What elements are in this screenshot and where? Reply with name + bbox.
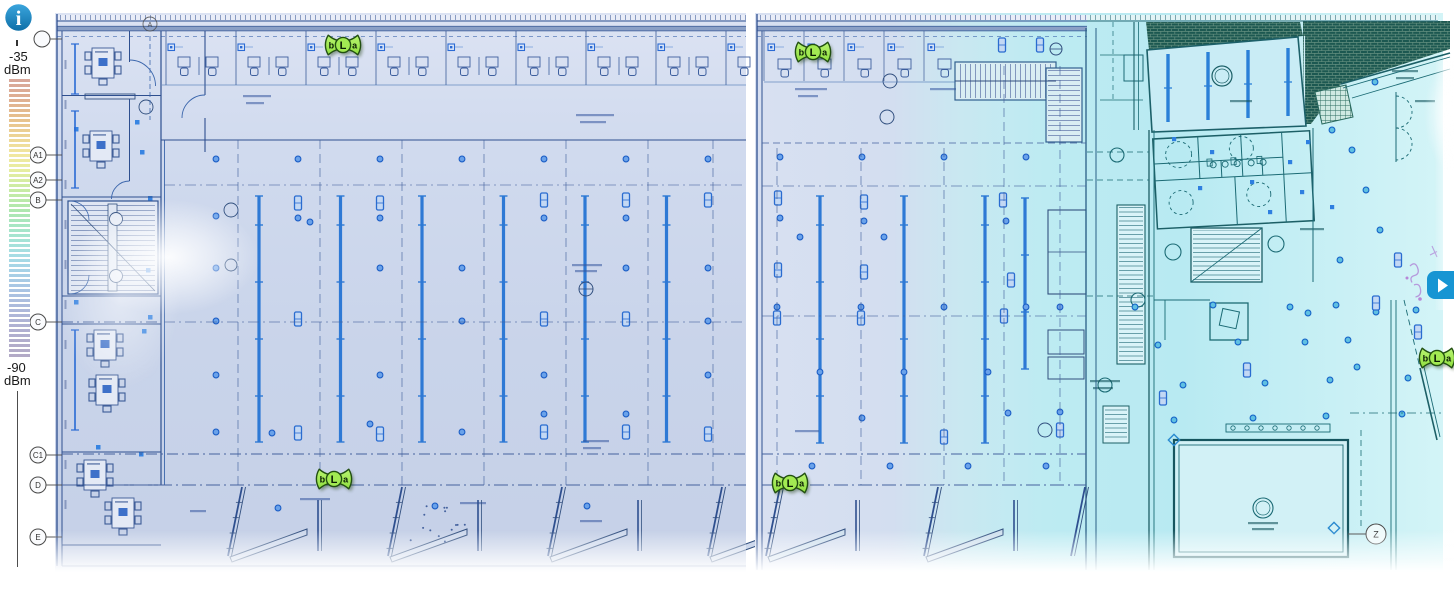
svg-text:E: E	[35, 533, 40, 542]
svg-text:A: A	[148, 22, 153, 29]
svg-text:A2: A2	[33, 176, 43, 185]
svg-text:A1: A1	[33, 151, 43, 160]
svg-text:C: C	[35, 318, 41, 327]
svg-text:B: B	[35, 196, 40, 205]
svg-text:D: D	[35, 481, 41, 490]
svg-text:i: i	[16, 6, 22, 30]
svg-text:C1: C1	[33, 451, 44, 460]
